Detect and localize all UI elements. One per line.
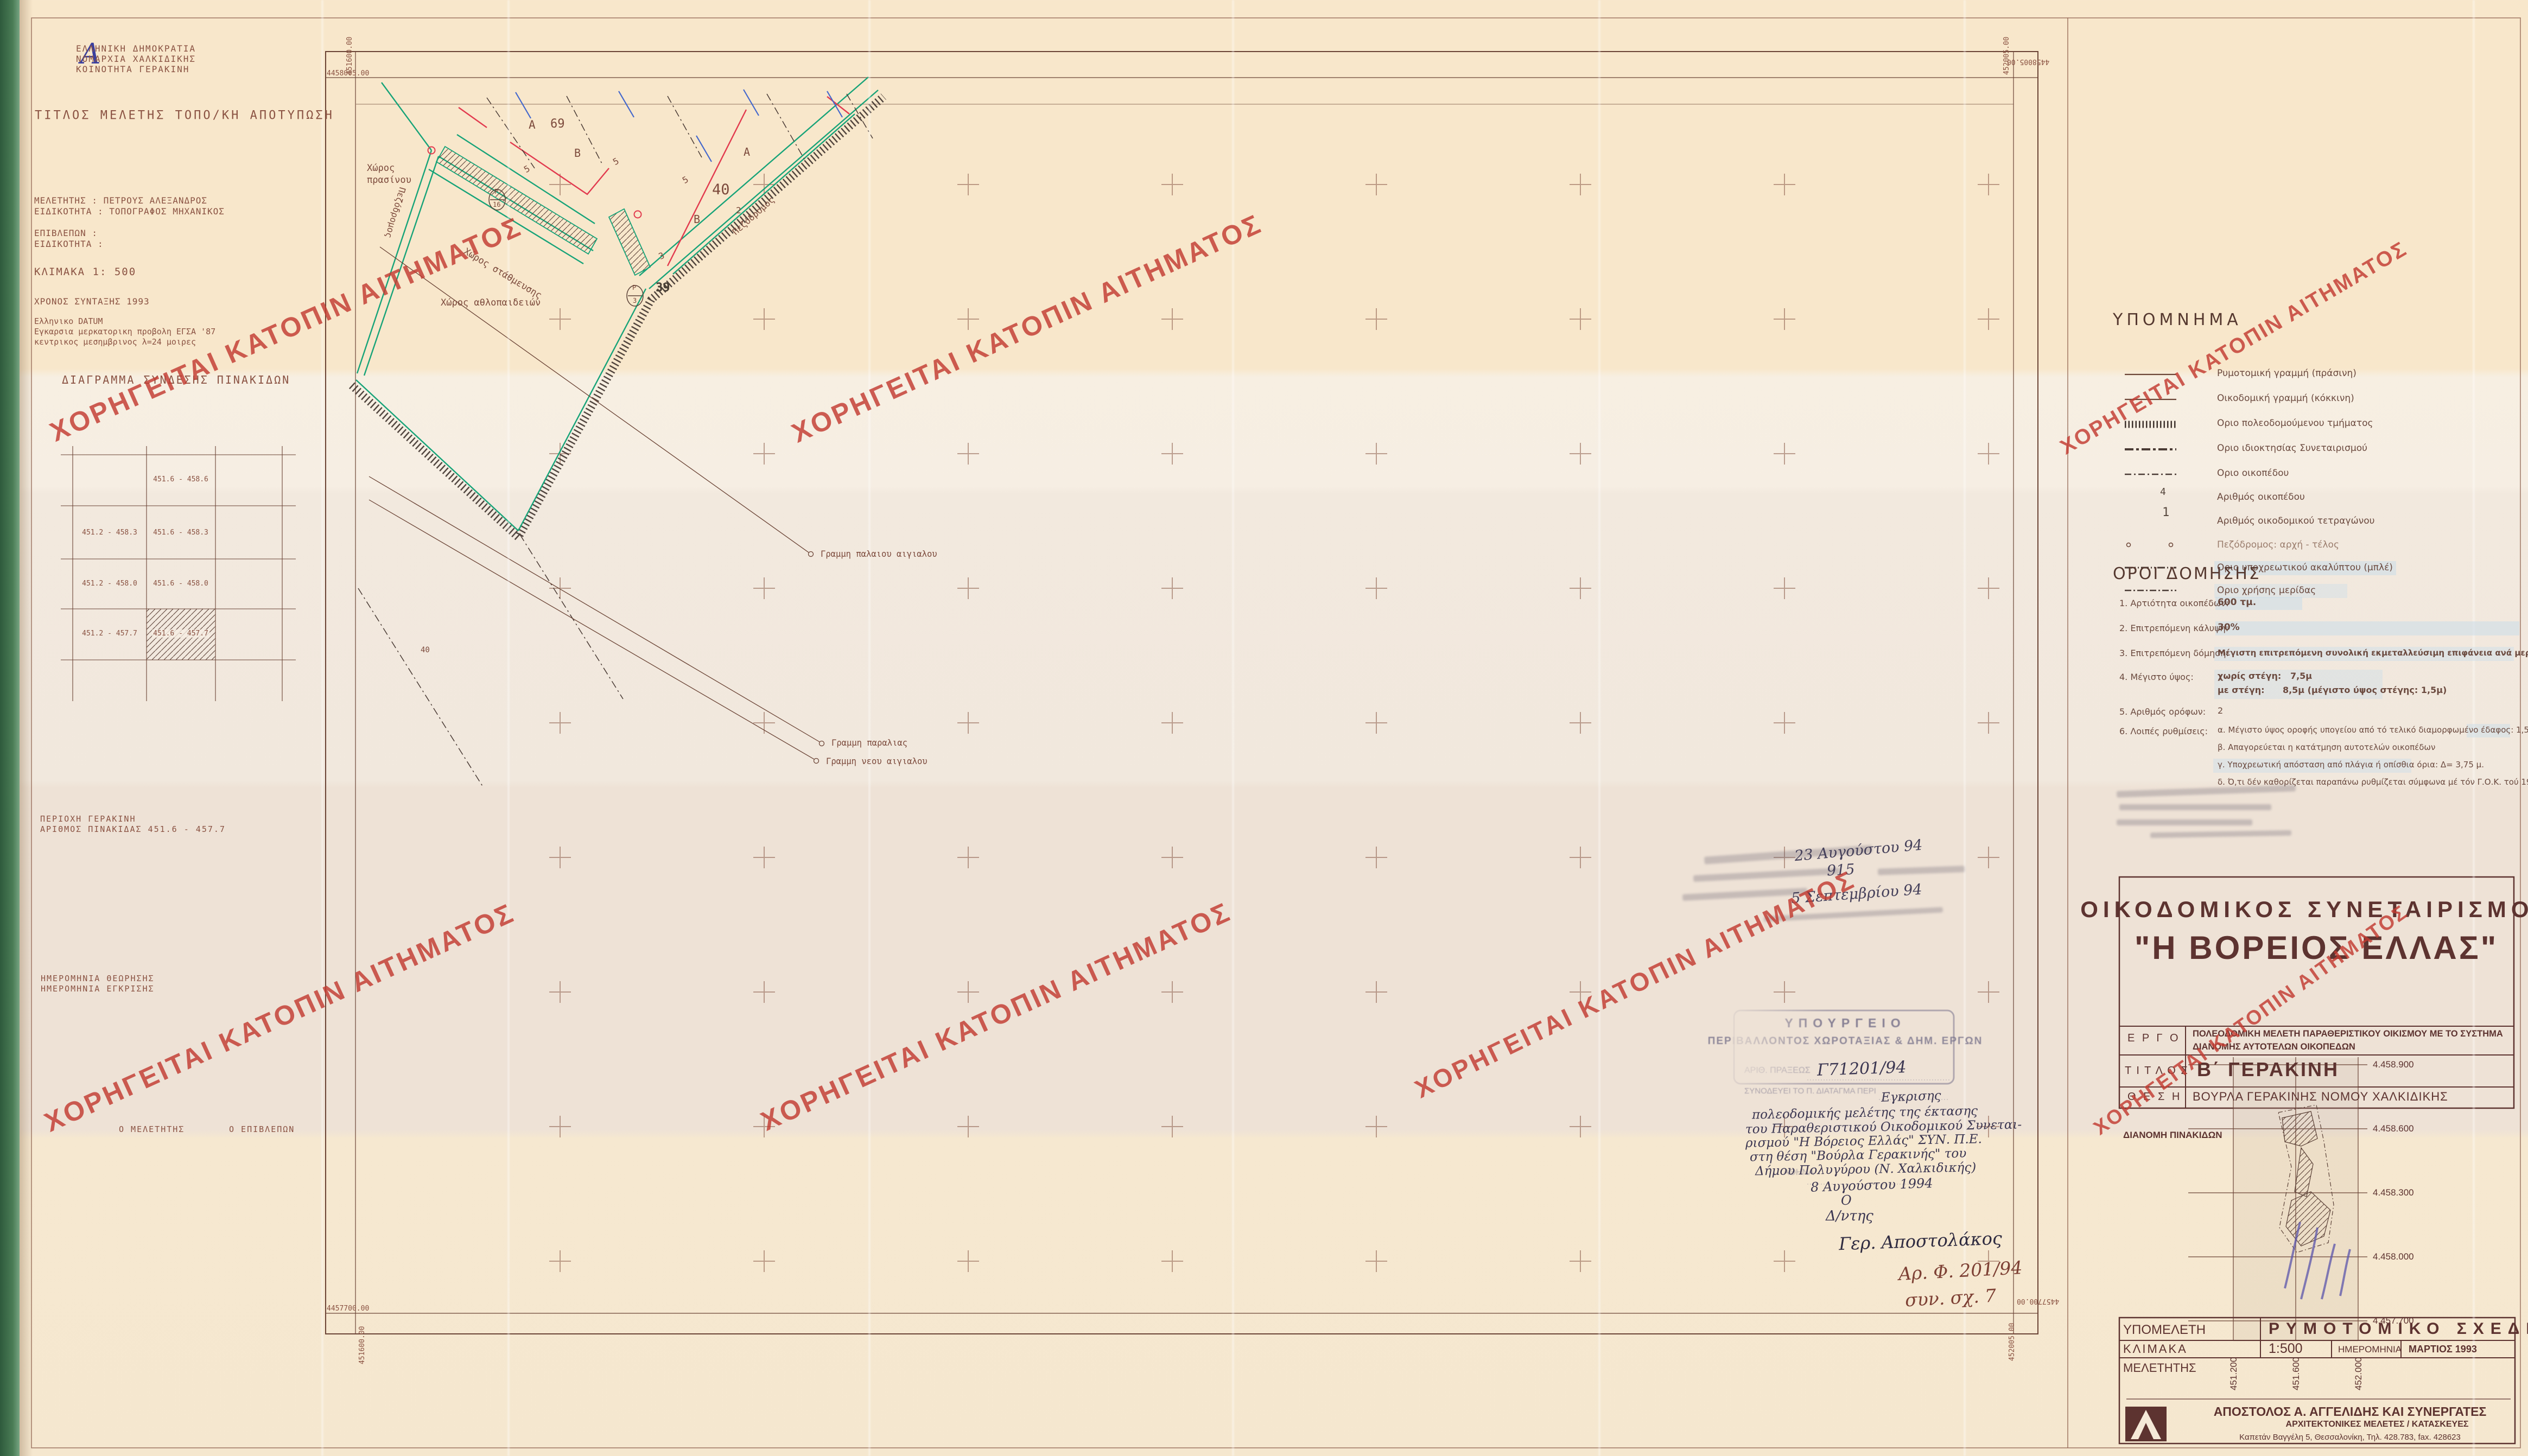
keymap-y-label: 4.458.600 — [2373, 1123, 2414, 1134]
map-label-old-shore: Γραμμη παλαιου αιγιαλου — [821, 549, 937, 559]
keymap-y-label: 4.458.300 — [2373, 1187, 2414, 1198]
agency-line-2: ΝΟΜΑΡΧΙΑ ΧΑΛΚΙΔΙΚΗΣ — [76, 54, 196, 64]
block-number-39: 39 — [656, 281, 670, 295]
fold-crease — [1598, 0, 1600, 1456]
study-epivlepon: ΕΠΙΒΛΕΠΩΝ : — [34, 228, 98, 238]
map-label-sports: Χώρος αθλοπαιδειών — [441, 297, 541, 308]
map-coord-n-bottomright: 4457700.00 — [2017, 1297, 2059, 1305]
block-letter: Α — [744, 145, 750, 158]
block-letter: Β — [574, 147, 581, 160]
coop-titlos-value: Β΄ ΓΕΡΑΚΙΝΗ — [2197, 1058, 2339, 1081]
legend-item-label: Πεζόδρομος: αρχή - τέλος — [2217, 539, 2339, 550]
connection-grid-lines — [61, 446, 296, 701]
study-datum-3: κεντρικος μεσημβρινος λ=24 μοιρες — [34, 337, 196, 347]
map-label-green-space: πρασίνου — [367, 175, 411, 186]
parking-symbol-3: 3 — [633, 297, 637, 304]
keymap-y-label: 4.458.900 — [2373, 1059, 2414, 1070]
study-datum-1: Ελληνικο DATUM — [34, 316, 103, 326]
oroi-row-value: με στέγη: 8,5μ (μέγιστο ύψος στέγης: 1,5… — [2218, 685, 2447, 695]
fold-crease — [868, 0, 871, 1456]
coop-name-line-1: ΟΙΚΟΔΟΜΙΚΟΣ ΣΥΝΕΤΑΙΡΙΣΜΟΣ — [2080, 897, 2528, 923]
stamp-hand-o: Ο — [1841, 1193, 1852, 1208]
legend-item-label: Αριθμός οικοπέδου — [2217, 492, 2305, 503]
study-scale: ΚΛΙΜΑΚΑ 1: 500 — [34, 266, 136, 278]
firm-name: ΑΠΟΣΤΟΛΟΣ Α. ΑΓΓΕΛΙΔΗΣ ΚΑΙ ΣΥΝΕΡΓΑΤΕΣ — [2214, 1404, 2487, 1419]
titleblock-meletitis-label: ΜΕΛΕΤΗΤΗΣ — [2123, 1361, 2196, 1375]
signature-meletitis: Ο ΜΕΛΕΤΗΤΗΣ — [119, 1124, 185, 1134]
legend-title: ΥΠΟΜΝΗΜΑ — [2113, 310, 2242, 329]
legend-symbol-4: 4 — [2160, 486, 2166, 498]
grid-cell-label: 451.2 - 458.0 — [82, 580, 137, 588]
map-coord-e-bottomright: 452005.00 — [2008, 1323, 2016, 1361]
fold-crease — [321, 0, 323, 1456]
grid-cell-label: 451.6 - 458.0 — [153, 580, 208, 588]
titleblock-scale-label: ΚΛΙΜΑΚΑ — [2123, 1342, 2188, 1356]
paper-torn-edge-shadow — [20, 0, 33, 1456]
parking-symbol-16: 16 — [493, 201, 500, 208]
legend-item-label: Οριο χρήσης μερίδας — [2217, 585, 2316, 596]
keymap-x-label: 451.600 — [2291, 1357, 2302, 1390]
grid-cell-label: 451.2 - 458.3 — [82, 529, 137, 537]
stamp-decree-label: ΣΥΝΟΔΕΥΕΙ ΤΟ Π. ΔΙΑΤΑΓΜΑ ΠΕΡΙ — [1744, 1086, 1876, 1096]
scanner-green-edge — [0, 0, 20, 1456]
study-year: ΧΡΟΝΟΣ ΣΥΝΤΑΞΗΣ 1993 — [34, 296, 150, 307]
grid-cell-label: 451.2 - 457.7 — [82, 630, 137, 638]
parcel-number: 2 — [736, 205, 741, 215]
titleblock-date-value: ΜΑΡΤΙΟΣ 1993 — [2409, 1344, 2477, 1355]
block-letter: Β — [694, 213, 700, 226]
keymap-y-label: 4.458.000 — [2373, 1251, 2414, 1262]
coop-ergo-label: Ε Ρ Γ Ο — [2127, 1032, 2181, 1045]
oroi-row-label: 4. Μέγιστο ύψος: — [2119, 672, 2194, 682]
firm-subtitle: ΑΡΧΙΤΕΚΤΟΝΙΚΕΣ ΜΕΛΕΤΕΣ / ΚΑΤΑΣΚΕΥΕΣ — [2286, 1420, 2469, 1429]
firm-logo — [2125, 1407, 2167, 1441]
oroi-highlight — [2215, 621, 2519, 635]
legend-item-label: Αριθμός οικοδομικού τετραγώνου — [2217, 516, 2374, 526]
stamp-hand-number: Γ71201/94 — [1816, 1058, 1907, 1080]
keymap-x-label: 452.000 — [2353, 1357, 2364, 1390]
oroi-row-value: 30% — [2218, 622, 2240, 633]
titleblock-date-label: ΗΜΕΡΟΜΗΝΙΑ — [2338, 1344, 2402, 1355]
legend-item-label: Οικοδομική γραμμή (κόκκινη) — [2217, 393, 2354, 404]
parcel-number-small-40: 40 — [421, 646, 430, 654]
map-coord-n-bottomleft: 4457700.00 — [327, 1305, 369, 1313]
grid-cell-label: 451.6 - 458.6 — [153, 475, 208, 484]
signature-epivlepon: Ο ΕΠΙΒΛΕΠΩΝ — [229, 1124, 295, 1134]
oroi-row-label: 1. Αρτιότητα οικοπέδων: — [2119, 598, 2229, 608]
oroi-row-value: β. Απαγορεύεται η κατάτμηση αυτοτελών οι… — [2218, 742, 2435, 752]
titleblock-scale-value: 1:500 — [2269, 1341, 2303, 1357]
legend-symbol-1: 1 — [2162, 506, 2169, 519]
map-coord-e-bottomleft: 451600.00 — [358, 1326, 366, 1364]
oroi-row-label: 5. Αριθμός ορόφων: — [2119, 707, 2206, 717]
legend-item-label: Ρυμοτομική γραμμή (πράσινη) — [2217, 368, 2356, 379]
block-number: 69 — [550, 117, 565, 131]
coop-thesi-value: ΒΟΥΡΛΑ ΓΕΡΑΚΙΝΗΣ ΝΟΜΟΥ ΧΑΛΚΙΔΙΚΗΣ — [2193, 1090, 2448, 1104]
study-datum-2: Εγκαρσια μερκατορικη προβολη ΕΓΣΑ '87 — [34, 327, 215, 336]
study-eidikotita-2: ΕΙΔΙΚΟΤΗΤΑ : — [34, 239, 104, 249]
region-name: ΠΕΡΙΟΧΗ ΓΕΡΑΚΙΝΗ — [40, 814, 136, 824]
oroi-row-value: Μέγιστη επιτρεπόμενη συνολική εκμεταλλεύ… — [2218, 648, 2528, 658]
grid-cell-label: 451.6 - 457.7 — [152, 630, 209, 638]
parking-symbol-p: P — [494, 188, 498, 195]
agency-line-1: ΕΛΛΗΝΙΚΗ ΔΗΜΟΚΡΑΤΙΑ — [76, 43, 196, 54]
scanned-urban-plan-sheet: { "watermark": { "text": "ΧΟΡΗΓΕΙΤΑΙ ΚΑΤ… — [0, 0, 2528, 1456]
date-egrisis: ΗΜΕΡΟΜΗΝΙΑ ΕΓΚΡΙΣΗΣ — [41, 984, 155, 994]
firm-address: Καπετάν Βαγγέλη 5, Θεσσαλονίκη, Τηλ. 428… — [2239, 1433, 2461, 1442]
plate-number: ΑΡΙΘΜΟΣ ΠΙΝΑΚΙΔΑΣ 451.6 - 457.7 — [40, 824, 226, 834]
oroi-row-value: 600 τμ. — [2218, 597, 2256, 608]
oroi-row-value: χωρίς στέγη: 7,5μ — [2218, 671, 2312, 681]
legend-item-label: Οριο οικοπέδου — [2217, 468, 2289, 479]
map-coord-n-topright: 4458005.00 — [2007, 58, 2049, 66]
grid-cell-label: 451.6 - 458.3 — [153, 529, 208, 537]
agency-line-3: ΚΟΙΝΟΤΗΤΑ ΓΕΡΑΚΙΝΗ — [76, 64, 189, 74]
date-theorisis: ΗΜΕΡΟΜΗΝΙΑ ΘΕΩΡΗΣΗΣ — [41, 974, 155, 983]
study-eidikotita: ΕΙΔΙΚΟΤΗΤΑ : ΤΟΠΟΓΡΑΦΟΣ ΜΗΧΑΝΙΚΟΣ — [34, 206, 225, 217]
study-title: ΤΙΤΛΟΣ ΜΕΛΕΤΗΣ ΤΟΠΟ/ΚΗ ΑΠΟΤΥΠΩΣΗ — [35, 109, 334, 122]
map-label-beach: Γραμμη παραλιας — [831, 738, 907, 748]
oroi-row-value: α. Μέγιστο ύψος οροφής υπογείου από τό τ… — [2218, 725, 2528, 735]
keymap-x-label: 451.200 — [2228, 1357, 2239, 1390]
study-meletitis: ΜΕΛΕΤΗΤΗΣ : ΠΕΤΡΟΥΣ ΑΛΕΞΑΝΔΡΟΣ — [34, 195, 207, 206]
legend-item-label: Οριο πολεοδομούμενου τμήματος — [2217, 418, 2373, 429]
titleblock-ypomeleti-label: ΥΠΟΜΕΛΕΤΗ — [2123, 1323, 2206, 1338]
parking-symbol-p: P — [632, 284, 636, 291]
map-label-green-space: Χώρος — [367, 163, 395, 174]
oroi-row-label: 3. Επιτρεπόμενη δόμηση: — [2119, 648, 2229, 658]
legend-item-label: Οριο ιδιοκτησίας Συνεταιρισμού — [2217, 443, 2367, 454]
titleblock-ypomeleti-value: ΡΥΜΟΤΟΜΙΚΟ ΣΧΕΔΙΟ — [2269, 1320, 2528, 1338]
map-coord-e-topleft: 451600.00 — [346, 37, 354, 75]
map-label-new-shore: Γραμμη νεου αιγιαλου — [826, 756, 928, 766]
stamp-hand-line: Εγκρισης — [1881, 1089, 1941, 1105]
oroi-row-value: γ. Υποχρεωτική απόσταση από πλάγια ή οπί… — [2218, 760, 2484, 770]
oroi-row-label: 2. Επιτρεπόμενη κάλυψη: — [2119, 623, 2228, 633]
stamp-hand-dntis: Δ/ντης — [1826, 1208, 1873, 1224]
block-number-40: 40 — [712, 181, 730, 198]
keymap-title: ΔΙΑΝΟΜΗ ΠΙΝΑΚΙΔΩΝ — [2123, 1130, 2222, 1141]
oroi-row-label: 6. Λοιπές ρυθμίσεις: — [2119, 726, 2208, 736]
map-coord-e-topright: 452005.00 — [2003, 37, 2011, 75]
oroi-title: ΟΡΟΙ ΔΟΜΗΣΗΣ — [2113, 564, 2261, 583]
block-letter: Α — [529, 118, 536, 131]
oroi-row-value: 2 — [2218, 705, 2223, 716]
